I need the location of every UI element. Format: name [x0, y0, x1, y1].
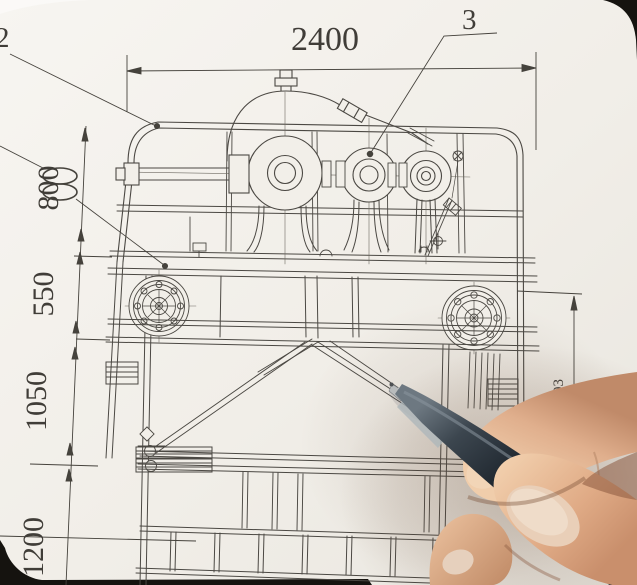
drawing-photo: 2400 3 2 800 550 1050 1200	[0, 0, 637, 585]
dimension-1050-label: 1050	[20, 371, 53, 431]
gearbox-shaft-1	[248, 136, 322, 210]
dimension-550-label: 550	[27, 272, 60, 317]
photo-of-engineering-drawing: 2400 3 2 800 550 1050 1200	[0, 0, 637, 585]
leader-dot-icon	[367, 151, 373, 157]
leader-dot-icon	[154, 123, 159, 128]
pen-tip-point	[390, 383, 394, 387]
dimension-1200-label: 1200	[17, 517, 50, 577]
callout-2-label: 2	[0, 22, 10, 54]
gearbox-shaft-3	[401, 151, 451, 201]
dimension-2400-label: 2400	[291, 21, 359, 58]
dimension-800-label: 800	[32, 166, 65, 211]
leader-dot-icon	[162, 263, 167, 268]
callout-3-label: 3	[462, 4, 477, 36]
